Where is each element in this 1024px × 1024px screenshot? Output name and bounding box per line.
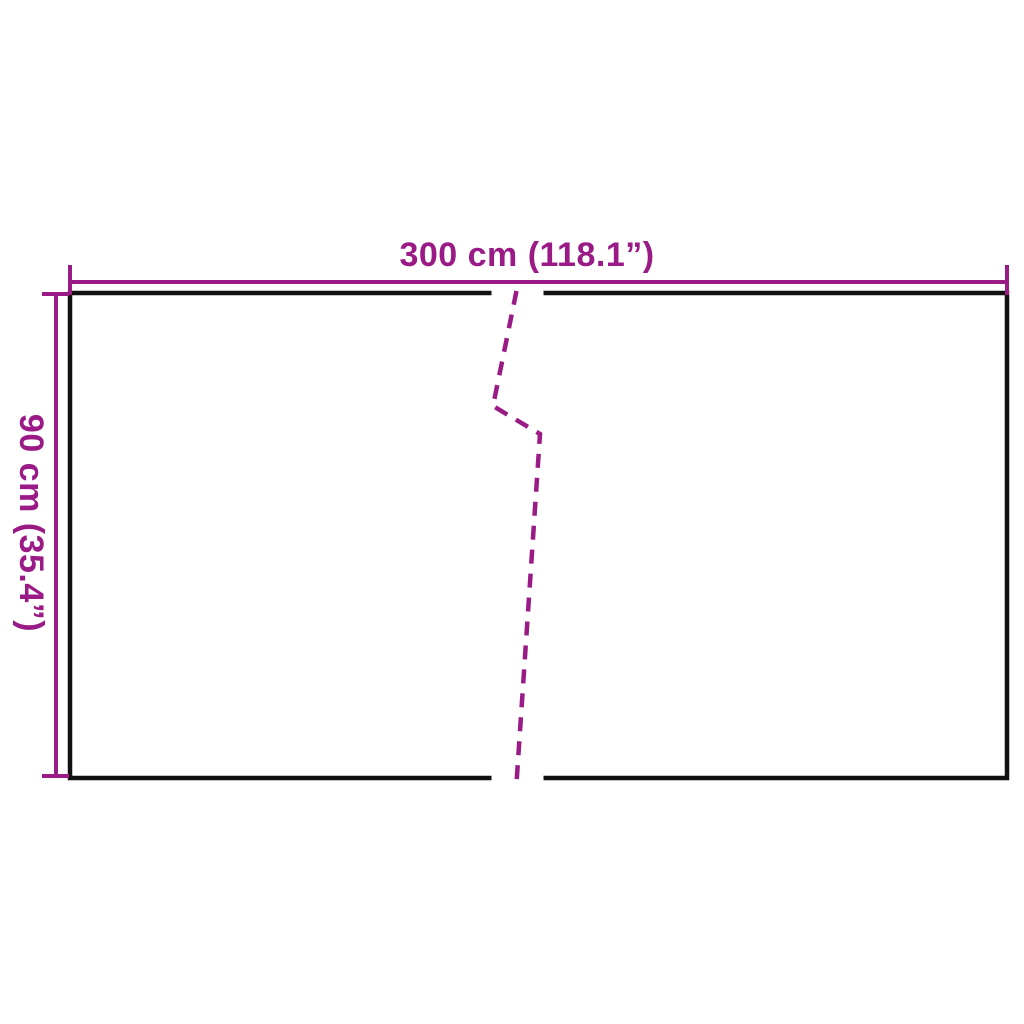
- height-dimension-label: 90 cm (35.4”): [12, 414, 50, 632]
- panel-outline-right-half: [544, 293, 1008, 778]
- dimension-diagram: 300 cm (118.1”) 90 cm (35.4”): [0, 0, 1024, 1024]
- panel-outline: [70, 293, 1007, 778]
- width-dimension-label: 300 cm (118.1”): [399, 236, 654, 274]
- panel-break-line: [493, 291, 540, 783]
- diagram-canvas: 300 cm (118.1”) 90 cm (35.4”): [0, 0, 1024, 1024]
- panel-outline-left-half: [70, 293, 492, 778]
